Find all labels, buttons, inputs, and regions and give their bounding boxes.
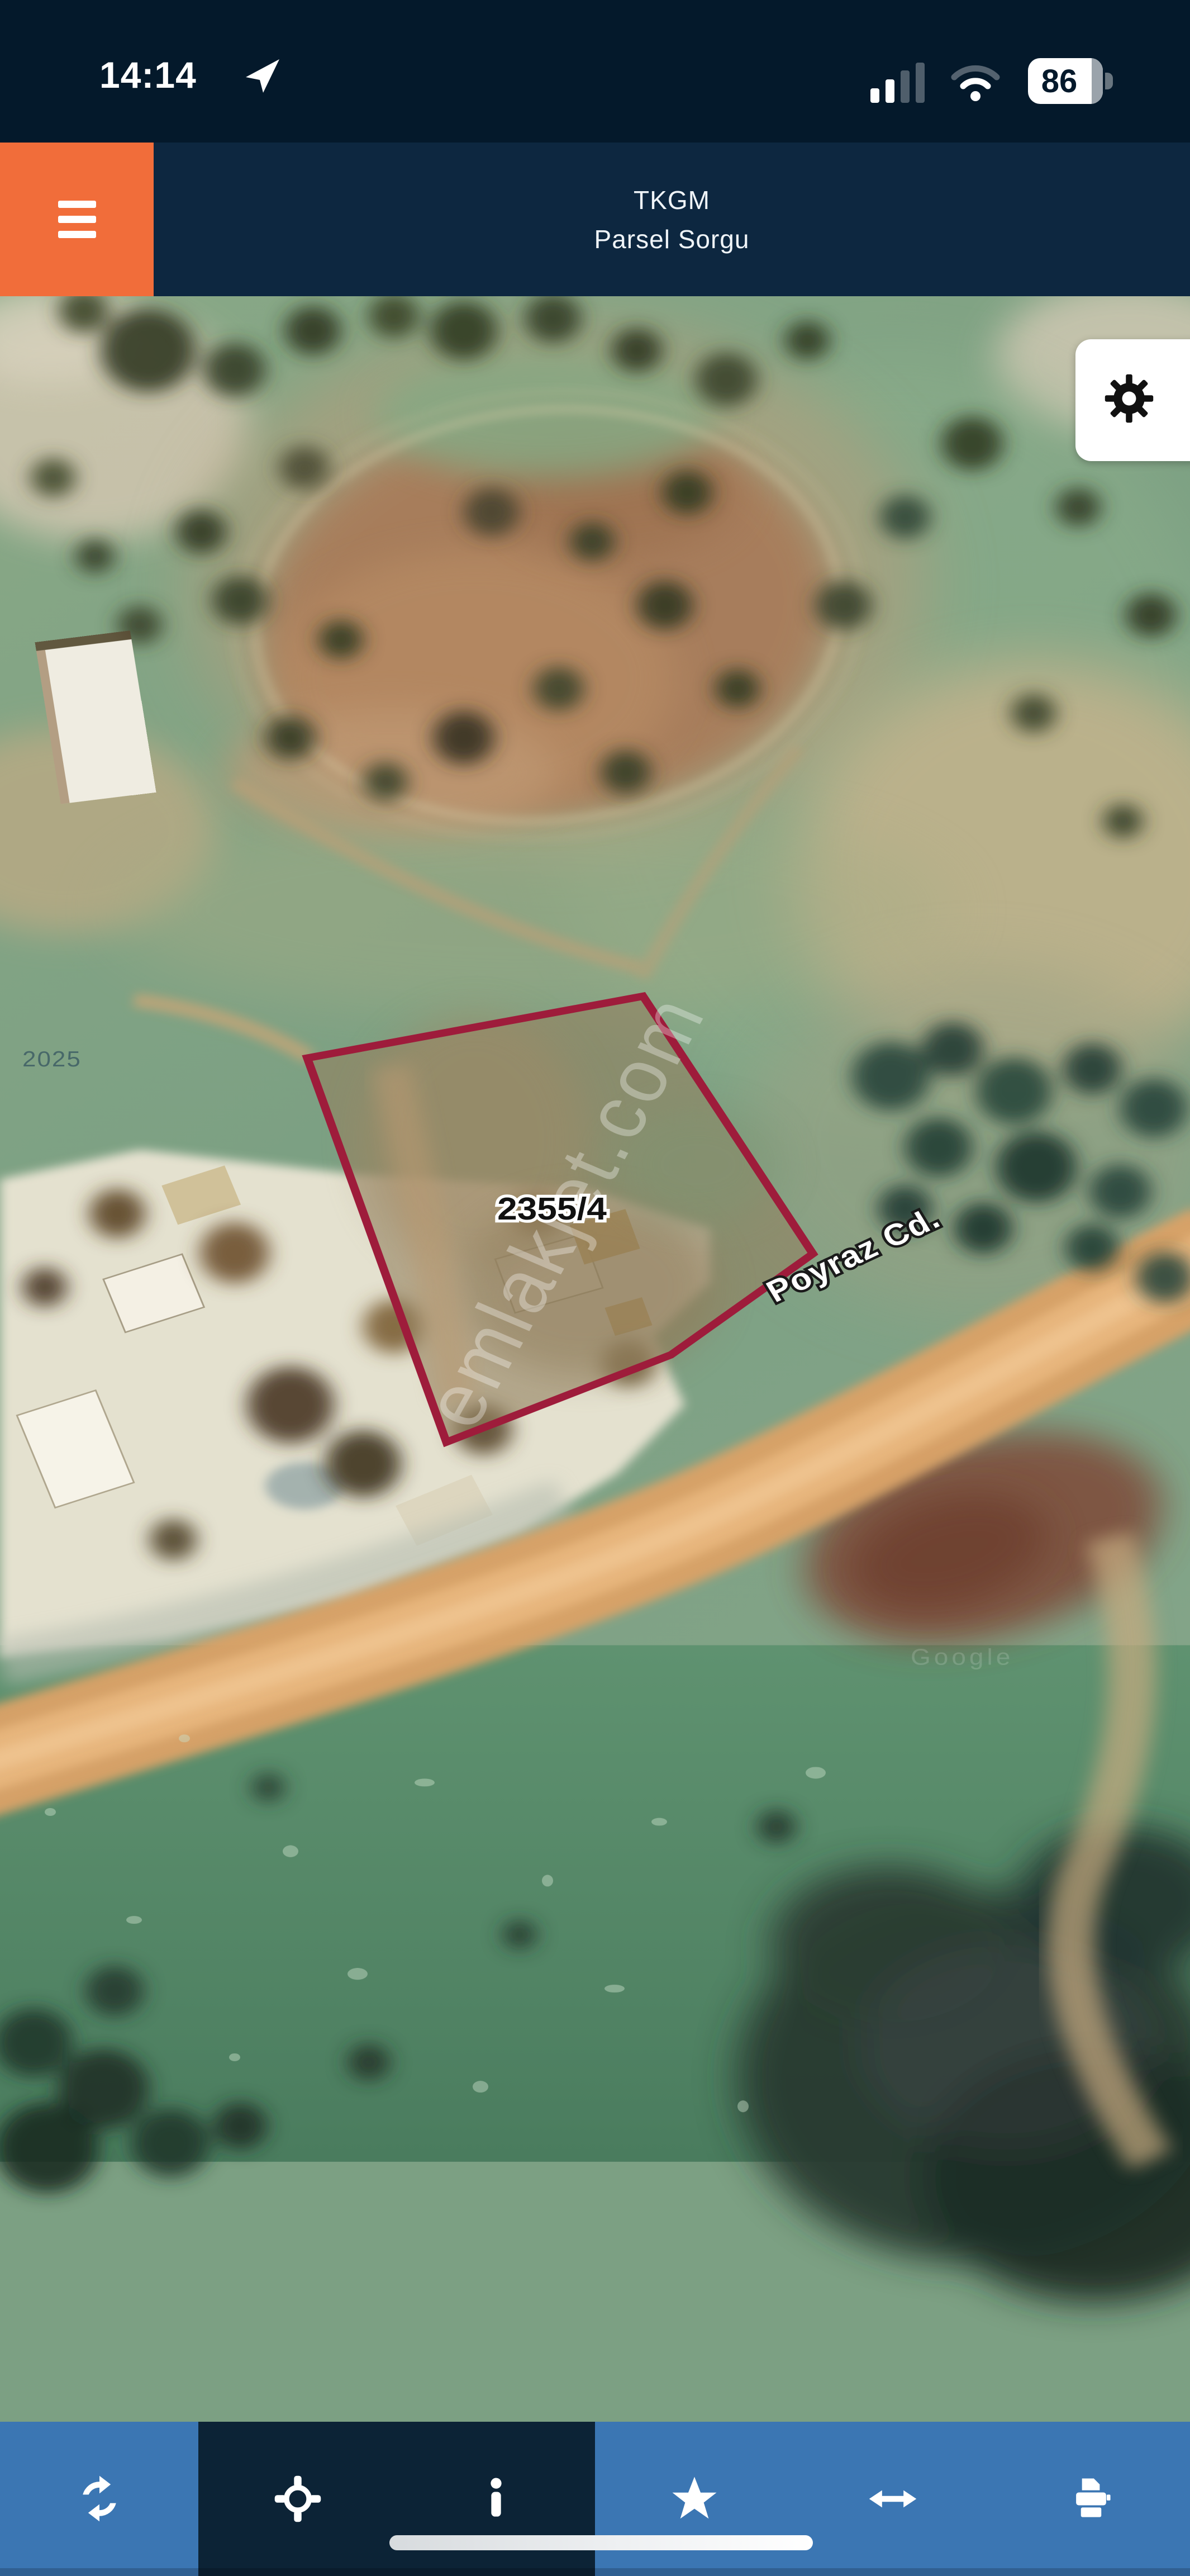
crosshair-locate-icon: [271, 2472, 325, 2526]
star-favorite-icon: [665, 2470, 723, 2528]
clock: 14:14: [99, 54, 197, 96]
gear-icon: [1102, 372, 1156, 425]
hamburger-menu-button[interactable]: [0, 143, 154, 296]
printer-icon: [1064, 2472, 1118, 2526]
status-bar: 14:14 86: [0, 0, 1190, 143]
app-title: TKGM: [634, 185, 710, 215]
battery-percent: 86: [1028, 58, 1091, 104]
app-header: TKGM Parsel Sorgu: [0, 143, 1190, 296]
refresh-button[interactable]: [0, 2422, 198, 2576]
parcel-number-label: 2355/4: [497, 1190, 607, 1226]
bottom-toolbar: [0, 2422, 1190, 2576]
favorite-button[interactable]: [595, 2422, 793, 2576]
home-indicator[interactable]: [389, 2535, 813, 2550]
info-icon: [469, 2472, 523, 2526]
app-subtitle: Parsel Sorgu: [594, 224, 750, 254]
map-canvas[interactable]: emlakjet.com Poyraz Cd. 2025 Google 2355…: [0, 296, 1190, 2422]
locate-button[interactable]: [198, 2422, 397, 2576]
location-arrow-icon: [245, 58, 280, 97]
measure-button[interactable]: [793, 2422, 992, 2576]
toolbar-bottom-shade: [0, 2568, 1190, 2576]
page-title: TKGM Parsel Sorgu: [154, 143, 1190, 296]
refresh-icon: [73, 2472, 126, 2526]
info-button[interactable]: [397, 2422, 595, 2576]
print-button[interactable]: [992, 2422, 1190, 2576]
attribution-year: 2025: [22, 1047, 82, 1071]
cellular-signal-icon: [870, 63, 925, 103]
settings-button[interactable]: [1075, 339, 1190, 461]
battery-icon: 86: [1028, 58, 1113, 104]
horizontal-arrow-measure-icon: [866, 2472, 920, 2526]
attribution-google: Google: [911, 1645, 1013, 1670]
wifi-icon: [950, 63, 1001, 107]
